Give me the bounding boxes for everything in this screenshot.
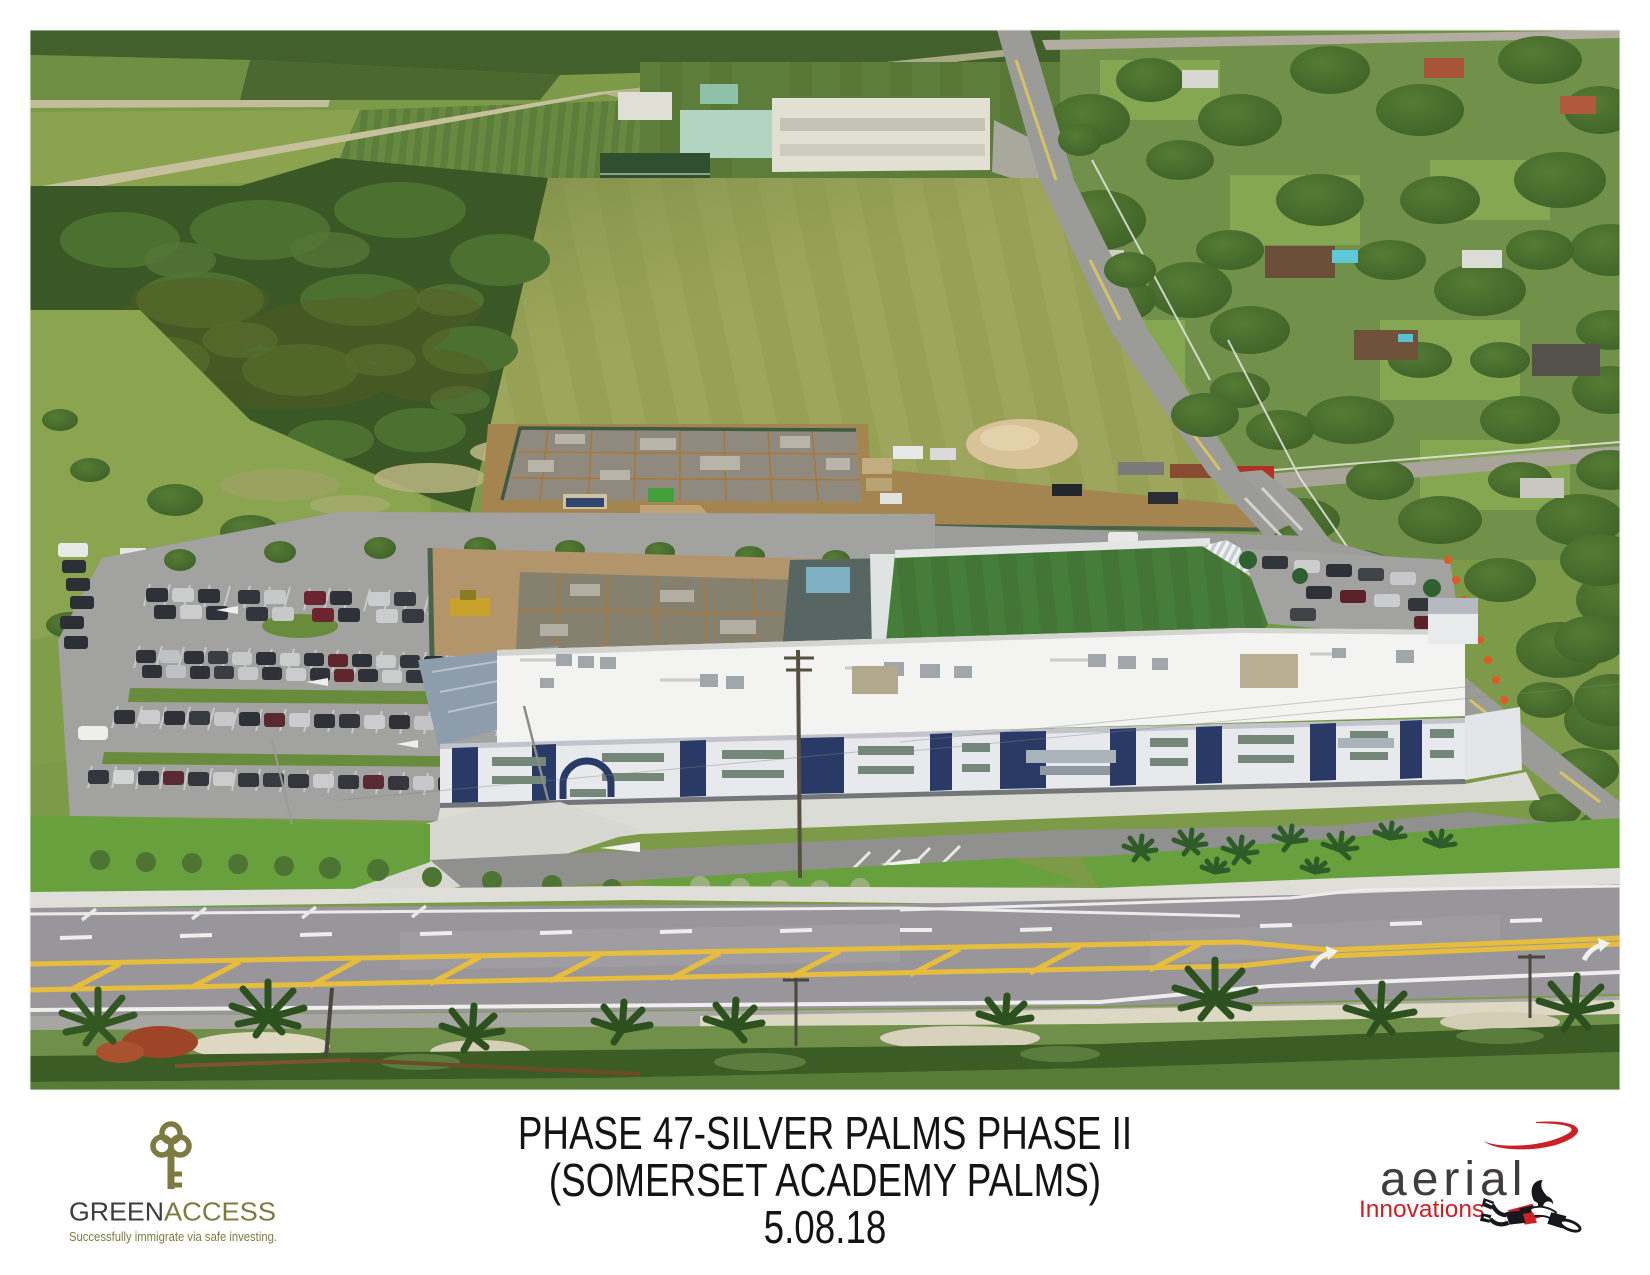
svg-text:ACCESS: ACCESS xyxy=(164,1197,276,1227)
svg-text:Successfully immigrate via saf: Successfully immigrate via safe investin… xyxy=(69,1230,277,1244)
svg-text:GREEN: GREEN xyxy=(69,1197,164,1227)
svg-text:Innovations: Innovations xyxy=(1359,1196,1484,1223)
